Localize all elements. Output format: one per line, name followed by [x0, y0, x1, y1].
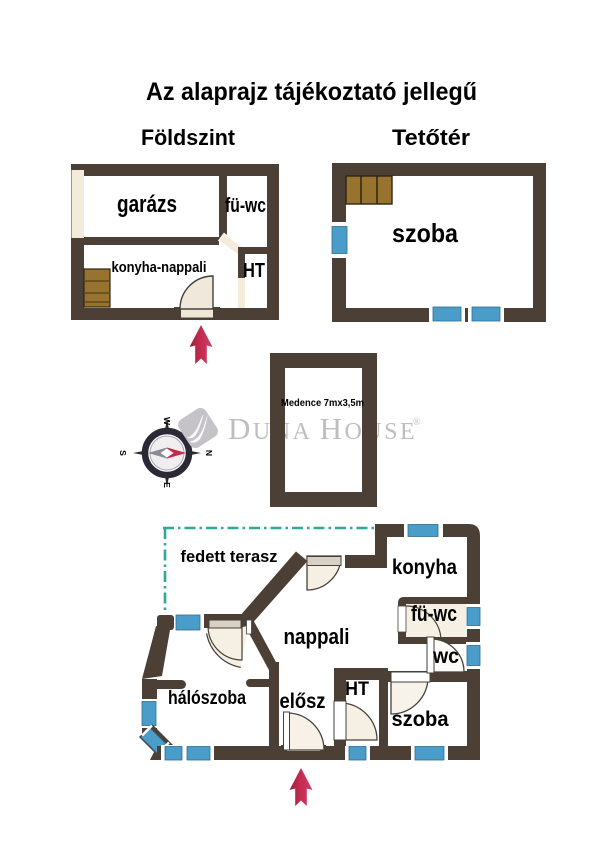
svg-text:elősz: elősz — [280, 690, 326, 713]
svg-text:hálószoba: hálószoba — [168, 688, 246, 709]
svg-text:Medence 7mx3,5m: Medence 7mx3,5m — [281, 398, 364, 409]
svg-text:S: S — [118, 450, 128, 456]
svg-text:E: E — [162, 482, 172, 488]
svg-text:N: N — [204, 450, 214, 456]
svg-text:konyha-nappali: konyha-nappali — [112, 260, 207, 276]
svg-text:wc: wc — [432, 645, 459, 668]
svg-text:garázs: garázs — [117, 191, 177, 218]
svg-text:szoba: szoba — [392, 218, 458, 248]
svg-text:fü-wc: fü-wc — [225, 195, 266, 217]
svg-text:fü-wc: fü-wc — [411, 601, 457, 626]
svg-text:fedett terasz: fedett terasz — [181, 547, 278, 566]
svg-text:®: ® — [413, 417, 421, 428]
svg-text:Az alaprajz tájékoztató jelleg: Az alaprajz tájékoztató jellegű — [146, 78, 477, 106]
svg-text:HT: HT — [243, 260, 265, 282]
svg-text:konyha: konyha — [392, 556, 457, 579]
svg-text:szoba: szoba — [392, 708, 449, 731]
svg-text:DUNA HOUSE: DUNA HOUSE — [228, 411, 417, 446]
svg-text:HT: HT — [345, 679, 369, 700]
svg-text:W: W — [162, 417, 172, 426]
svg-text:Tetőtér: Tetőtér — [392, 125, 470, 150]
svg-text:Földszint: Földszint — [141, 125, 236, 150]
svg-text:nappali: nappali — [284, 624, 350, 649]
